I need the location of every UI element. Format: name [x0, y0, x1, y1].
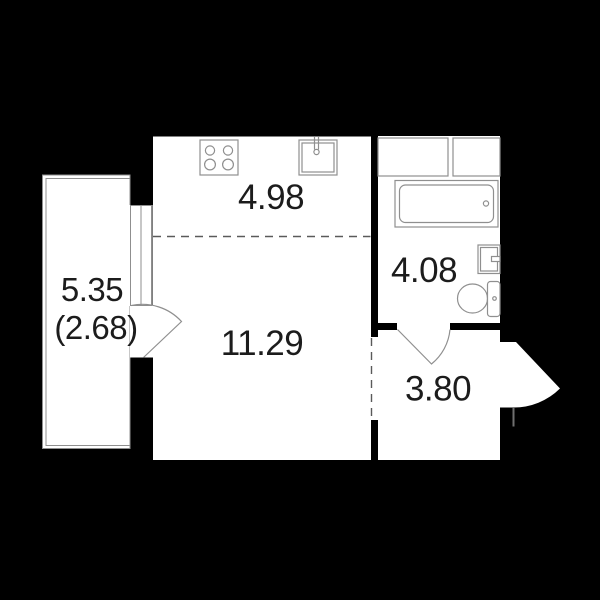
cabinet-icon	[378, 138, 500, 176]
bathroom-area-label: 4.08	[391, 251, 457, 290]
entrance-arrow-icon	[500, 342, 560, 408]
stove-icon	[200, 140, 238, 175]
kitchen-sink-icon	[299, 137, 337, 175]
entrance	[500, 342, 560, 427]
balcony-area-label: 5.35	[61, 271, 123, 308]
floor-plan-canvas: 4.98 11.29 4.08 3.80 5.35 (2.68)	[0, 0, 600, 600]
floor-plan: 4.98 11.29 4.08 3.80 5.35 (2.68)	[0, 0, 600, 600]
balcony-reduced-area-label: (2.68)	[54, 309, 137, 346]
passage-opening	[371, 337, 379, 420]
window-icon	[130, 205, 153, 306]
washbasin-icon	[478, 245, 500, 274]
bathroom-door-opening	[397, 322, 450, 331]
bathtub-icon	[395, 181, 498, 228]
living-room-area-label: 11.29	[221, 324, 304, 363]
kitchen-area-label: 4.98	[238, 178, 304, 217]
hallway-area-label: 3.80	[405, 370, 471, 409]
